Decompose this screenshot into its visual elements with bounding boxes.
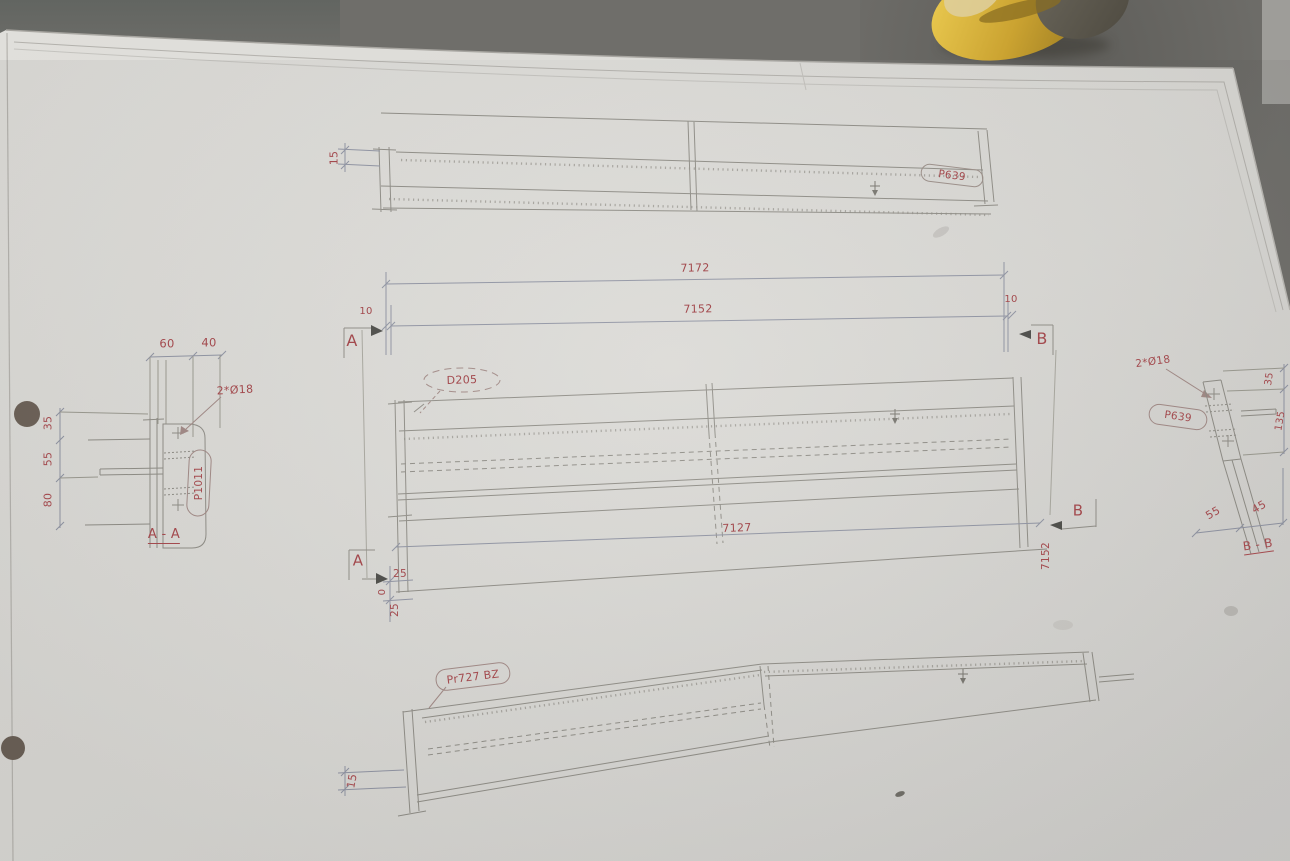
dim-label: 55 [43, 452, 54, 467]
dim-label: 60 [159, 338, 174, 350]
photo-of-drawing: 15 P639 7172 7152 10 10 A B 60 40 2*Ø18 … [0, 0, 1290, 861]
dim-label: 7172 [680, 262, 709, 273]
section-letter: A [346, 333, 357, 349]
dim-label: 7127 [722, 522, 752, 534]
paper-sheet [0, 30, 1290, 861]
punch-hole [1, 736, 25, 760]
dim-label: 25 [393, 569, 407, 580]
dim-label: 10 [359, 307, 372, 317]
dim-label: 35 [43, 416, 54, 431]
dim-label: 35 [1264, 372, 1276, 387]
dim-label: 15 [345, 773, 358, 789]
dim-label: 7152 [683, 303, 712, 314]
part-label: D205 [446, 374, 477, 386]
dim-label: 7152 [1041, 542, 1052, 570]
part-label: P1011 [194, 466, 205, 501]
dim-label: 10 [1004, 295, 1017, 305]
section-title: A - A [148, 528, 180, 544]
hole-note: 2*Ø18 [216, 384, 253, 397]
dim-label: 40 [201, 337, 216, 349]
section-letter: A [353, 554, 364, 569]
punch-hole [14, 401, 40, 427]
dim-label: 15 [329, 151, 340, 166]
section-letter: B [1036, 331, 1047, 347]
dim-label: 80 [43, 493, 54, 508]
dim-label: 25 [390, 603, 401, 617]
section-letter: B [1073, 504, 1084, 519]
drawing-sheet [0, 0, 1290, 861]
dim-label: 0 [378, 589, 388, 596]
